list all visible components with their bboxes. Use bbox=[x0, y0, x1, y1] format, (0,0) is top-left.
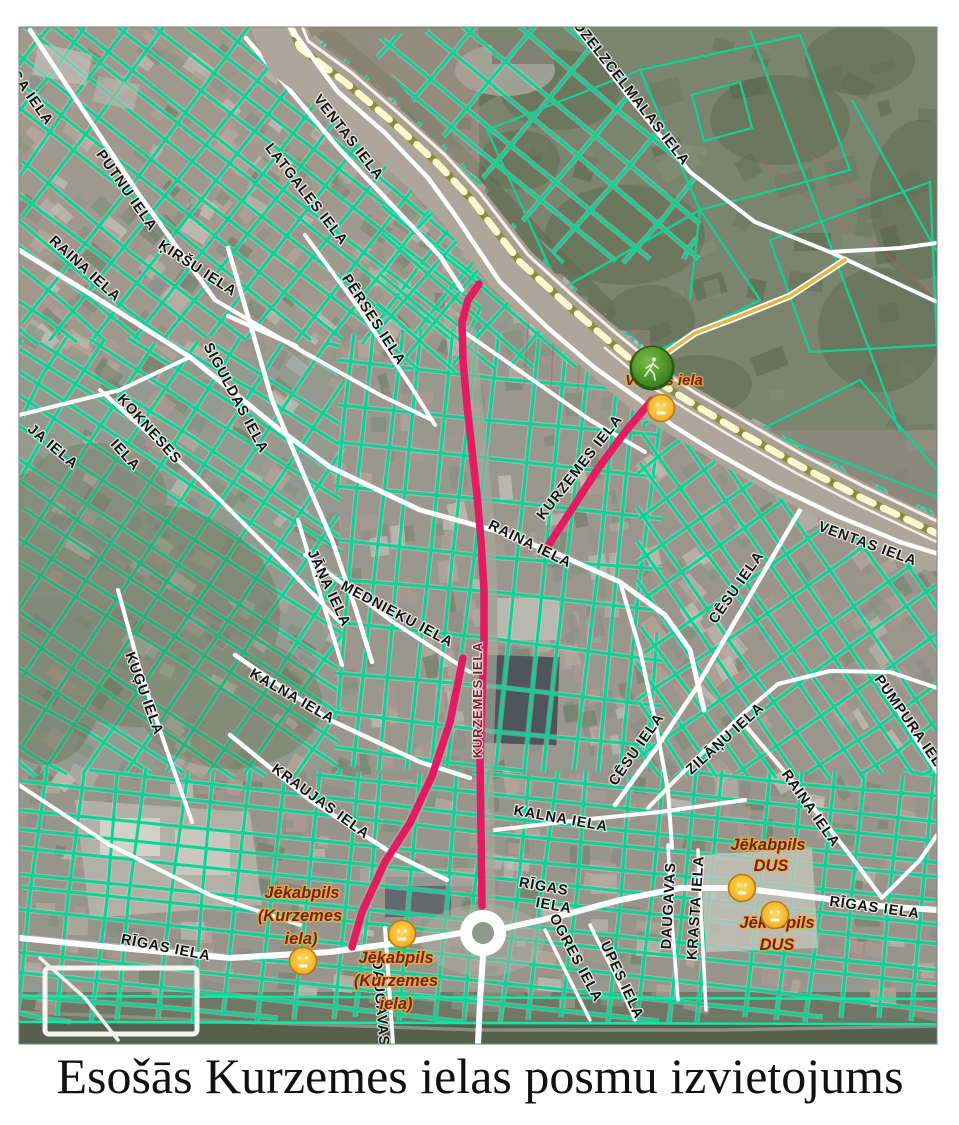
svg-text:iela): iela) bbox=[379, 995, 413, 1013]
svg-text:Esošās Kurzemes ielas posmu iz: Esošās Kurzemes ielas posmu izvietojums bbox=[56, 1048, 903, 1104]
svg-text:Jēkabpils: Jēkabpils bbox=[264, 884, 339, 902]
svg-text:(Kurzemes: (Kurzemes bbox=[258, 907, 342, 925]
svg-text:iela): iela) bbox=[284, 930, 318, 948]
svg-text:Jēkabpils: Jēkabpils bbox=[358, 949, 433, 967]
svg-text:Jēkabpils: Jēkabpils bbox=[730, 836, 805, 854]
svg-text:DUS: DUS bbox=[754, 857, 789, 875]
svg-text:DUS: DUS bbox=[760, 936, 795, 954]
svg-text:(Kurzemes: (Kurzemes bbox=[354, 972, 438, 990]
svg-text:KURZEMES IELA: KURZEMES IELA bbox=[470, 642, 485, 759]
